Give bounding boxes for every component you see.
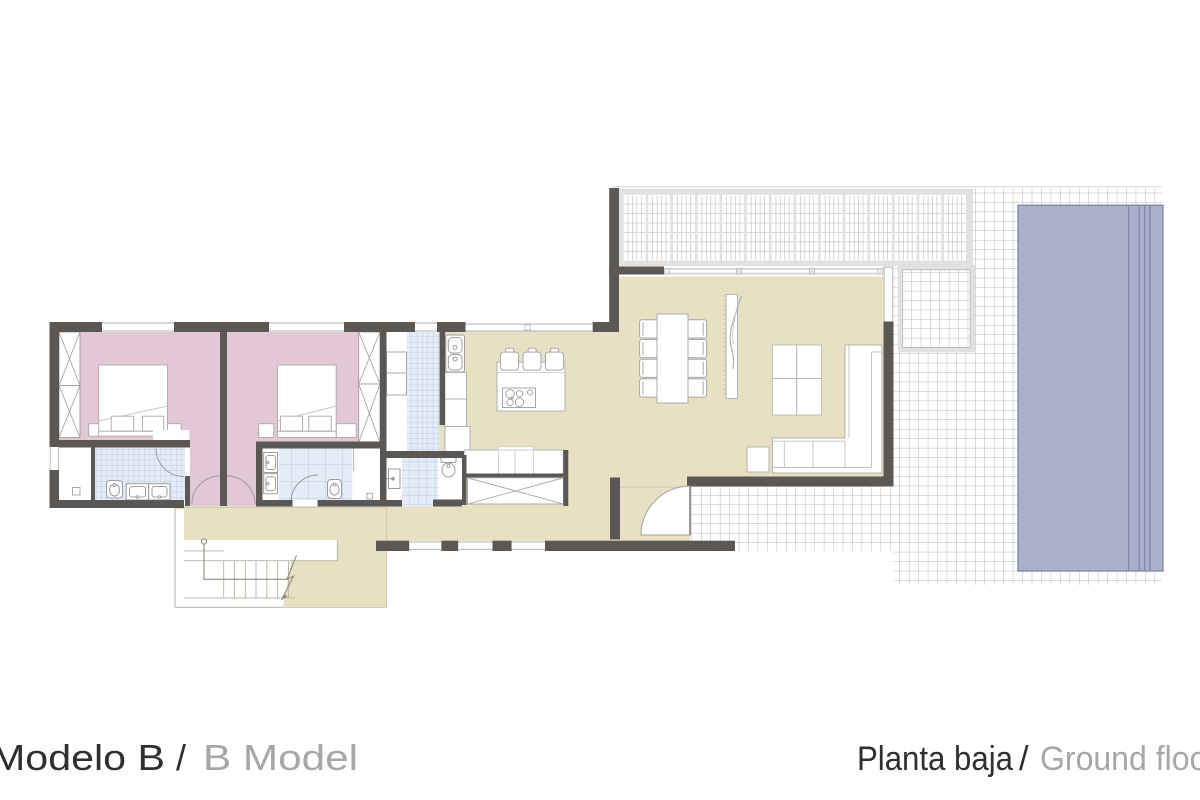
svg-text:/: /	[1019, 740, 1029, 778]
svg-text:Planta baja: Planta baja	[857, 740, 1014, 778]
svg-text:B Model: B Model	[203, 737, 358, 778]
svg-text:Modelo B: Modelo B	[0, 737, 165, 778]
svg-text:/: /	[176, 737, 186, 778]
svg-text:Ground floor: Ground floor	[1040, 740, 1200, 778]
